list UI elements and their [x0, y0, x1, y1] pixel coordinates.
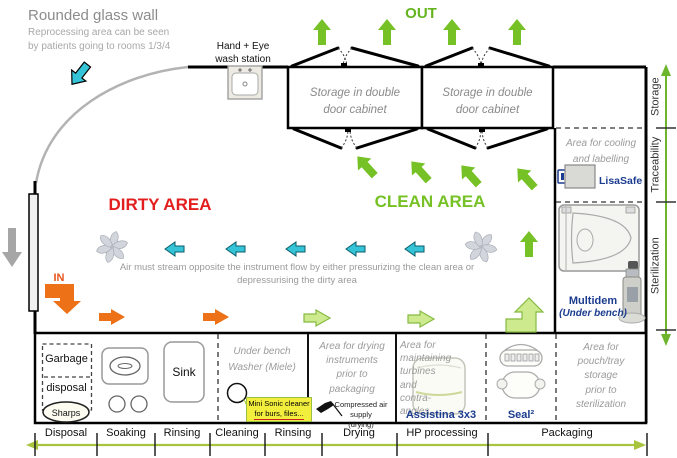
air-flow-arrows: [165, 242, 424, 256]
in-label: IN: [48, 271, 70, 286]
clean-flow-arrows: [304, 298, 543, 332]
sonic-note-line1: Mini Sonic cleaner: [248, 399, 309, 408]
sonic-note-line2: for burs, files...: [254, 409, 303, 420]
garbage-label-bottom: disposal: [42, 381, 91, 396]
sharps-label: Sharps: [44, 407, 88, 420]
sterilizer-top-view: [559, 205, 639, 271]
cooling-area-label: Area for cooling and labelling: [558, 136, 644, 167]
drying-area-label: Area for drying instruments prior to pac…: [312, 340, 392, 397]
reprocessing-room-floorplan: Rounded glass wall Reprocessing area can…: [0, 0, 677, 458]
clean-area-label: CLEAN AREA: [372, 190, 488, 214]
side-axis-sterilization: Sterilization: [648, 221, 663, 311]
washer-label: Under bench Washer (Miele): [222, 344, 302, 375]
multidem-note: (Under bench): [551, 307, 635, 321]
process-step-hp-processing: HP processing: [397, 426, 487, 441]
process-step-packaging: Packaging: [522, 426, 612, 441]
maintaining-area-label: Area for maintaining turbines and contra…: [400, 339, 486, 418]
pouch-storage-label: Area for pouch/tray storage prior to ste…: [558, 341, 644, 412]
out-label: OUT: [396, 3, 446, 24]
rounded-glass-wall: [36, 67, 188, 183]
storage-cabinet-1-label: Storage in double door cabinet: [292, 85, 418, 118]
side-axis-traceability: Traceability: [648, 120, 663, 210]
sonic-cleaner-note: Mini Sonic cleaner for burs, files...: [246, 397, 312, 422]
seal-label: Seal²: [491, 408, 551, 423]
process-step-drying: Drying: [314, 426, 404, 441]
sink-label: Sink: [164, 364, 204, 381]
garbage-label-top: Garbage: [42, 352, 91, 367]
lisasafe-label: LisaSafe: [599, 174, 655, 189]
lisasafe-icon: [558, 165, 595, 188]
assistina-label: Assistina 3x3: [398, 408, 484, 423]
glass-wall-title: Rounded glass wall: [28, 5, 198, 26]
compressed-air-label: Compressed air supply (drying): [328, 400, 394, 429]
entry-direction-arrow: [2, 228, 22, 267]
entrance-door: [29, 194, 38, 311]
air-flow-note: Air must stream opposite the instrument …: [92, 261, 502, 288]
wash-station-icon: [228, 66, 262, 99]
glass-wall-pointer-arrow: [65, 59, 95, 90]
in-bend-arrow: [45, 284, 81, 314]
soaking-station: [102, 348, 148, 412]
glass-wall-subtitle: Reprocessing area can be seen by patient…: [28, 26, 208, 53]
dirty-area-label: DIRTY AREA: [100, 193, 220, 217]
wash-station-label: Hand + Eye wash station: [212, 41, 274, 66]
dirty-flow-arrows: [99, 309, 229, 325]
storage-cabinet-2-label: Storage in double door cabinet: [424, 85, 551, 118]
